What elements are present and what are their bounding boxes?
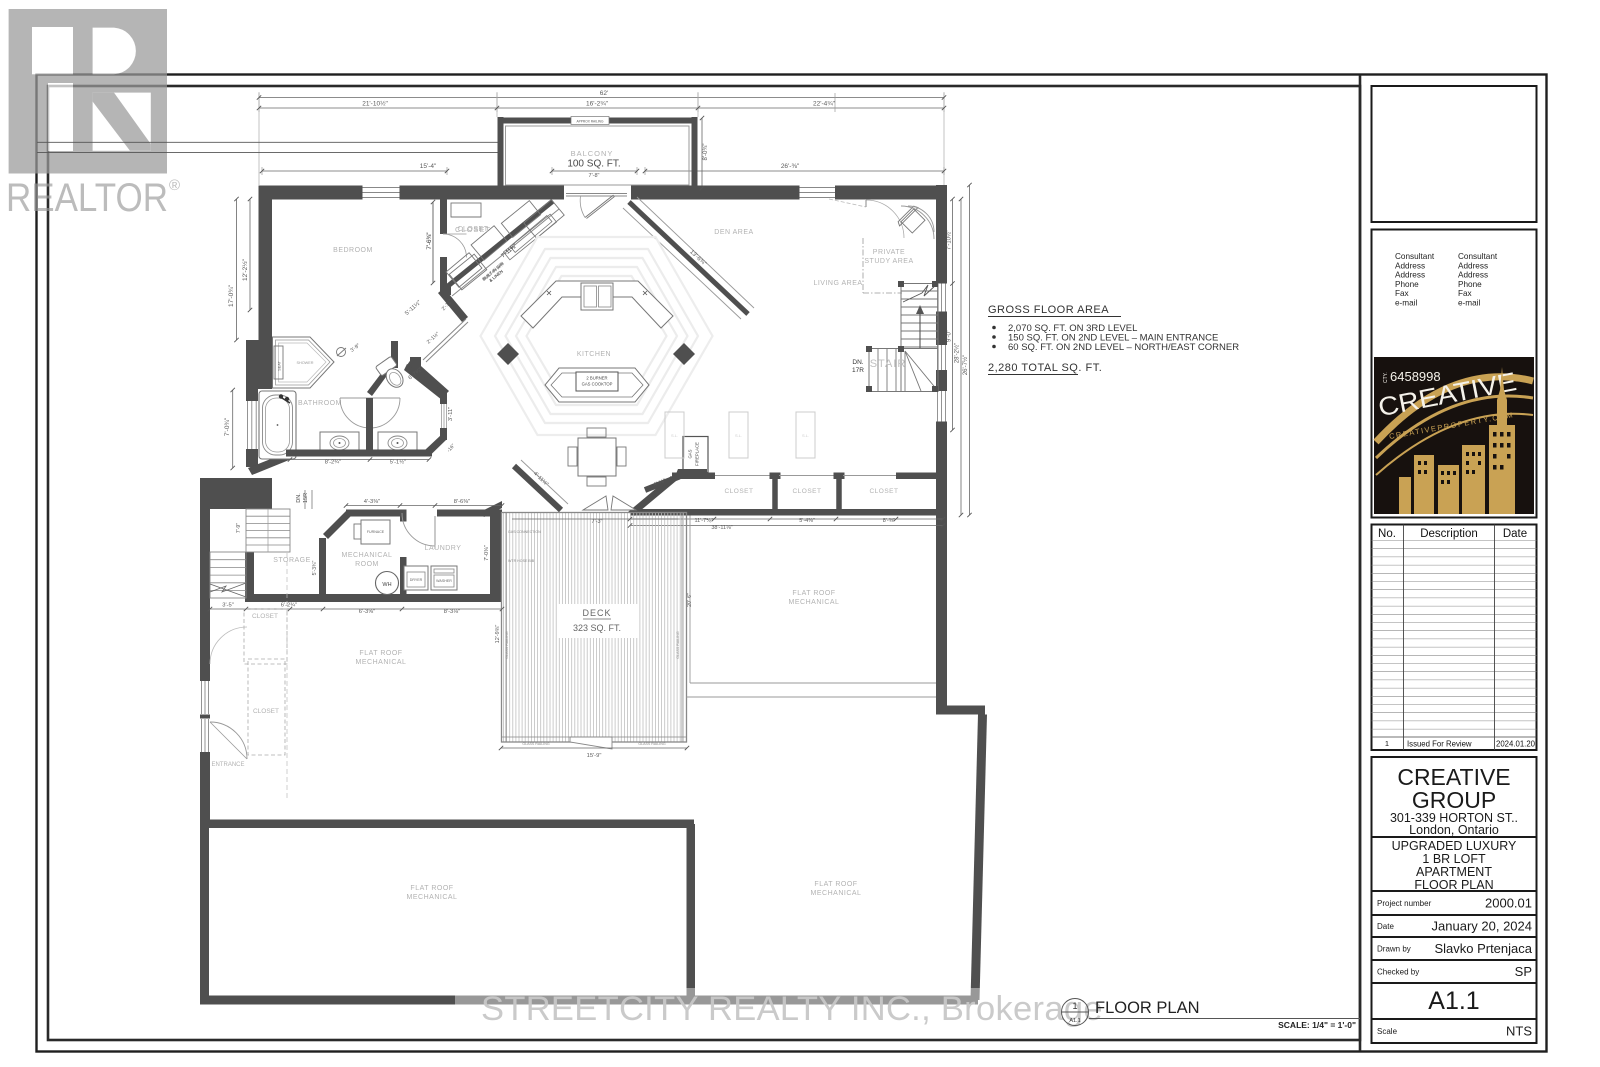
svg-text:5'-3¾": 5'-3¾" <box>312 561 318 576</box>
svg-text:SCALE: 1/4" = 1'-0": SCALE: 1/4" = 1'-0" <box>1278 1020 1356 1030</box>
svg-text:BALCONY: BALCONY <box>571 149 614 158</box>
svg-text:6458998: 6458998 <box>1390 369 1441 384</box>
svg-text:Drawn by: Drawn by <box>1377 945 1411 954</box>
svg-text:9'-0": 9'-0" <box>947 330 953 342</box>
svg-text:BATHROOM: BATHROOM <box>298 400 342 407</box>
svg-text:Checked by: Checked by <box>1377 968 1419 977</box>
svg-text:FLOOR PLAN: FLOOR PLAN <box>1095 999 1200 1017</box>
svg-text:STAIR: STAIR <box>870 358 907 370</box>
svg-text:6'-3⅝": 6'-3⅝" <box>359 609 375 615</box>
svg-text:21'-10½": 21'-10½" <box>362 100 388 108</box>
svg-text:Project number: Project number <box>1377 899 1432 908</box>
svg-text:GLASS RAILING: GLASS RAILING <box>676 631 680 659</box>
svg-text:28'-2½": 28'-2½" <box>954 343 961 363</box>
svg-text:12'-2½": 12'-2½" <box>241 258 249 281</box>
svg-text:Phone: Phone <box>1458 280 1482 289</box>
svg-text:e-mail: e-mail <box>1458 299 1480 308</box>
svg-text:DN.: DN. <box>852 359 863 366</box>
svg-text:FLOOR PLAN: FLOOR PLAN <box>1414 878 1493 892</box>
svg-text:FURNACE: FURNACE <box>367 530 385 534</box>
svg-text:4'-3⅜": 4'-3⅜" <box>364 499 380 505</box>
svg-text:FLAT ROOF: FLAT ROOF <box>359 650 402 657</box>
svg-text:A1.1: A1.1 <box>1428 987 1479 1015</box>
svg-text:17'-0¾": 17'-0¾" <box>228 284 235 307</box>
svg-text:MECHANICAL: MECHANICAL <box>789 599 840 606</box>
svg-text:2000.01: 2000.01 <box>1485 896 1532 911</box>
svg-text:12'-9⅜": 12'-9⅜" <box>495 625 501 644</box>
svg-text:Consultant: Consultant <box>1458 252 1498 261</box>
svg-text:STUDY AREA: STUDY AREA <box>864 258 913 265</box>
svg-text:Phone: Phone <box>1395 280 1419 289</box>
svg-text:MECHANICAL: MECHANICAL <box>407 894 458 901</box>
svg-text:S.L.: S.L. <box>735 433 742 438</box>
svg-text:8'-2¾": 8'-2¾" <box>325 460 341 466</box>
svg-text:5'-1½": 5'-1½" <box>390 459 406 466</box>
svg-text:January 20, 2024: January 20, 2024 <box>1432 919 1532 934</box>
svg-text:SP: SP <box>1515 964 1532 979</box>
svg-text:2024.01.20: 2024.01.20 <box>1496 740 1536 749</box>
svg-text:62': 62' <box>600 90 608 97</box>
svg-text:GROSS FLOOR AREA: GROSS FLOOR AREA <box>988 304 1109 316</box>
svg-text:GLASS RAILING: GLASS RAILING <box>522 742 550 746</box>
svg-text:Address: Address <box>1458 261 1488 270</box>
svg-text:GLASS RAILING: GLASS RAILING <box>505 631 509 659</box>
svg-text:22'-4¾": 22'-4¾" <box>813 101 836 108</box>
svg-text:WH: WH <box>382 582 391 588</box>
svg-text:Consultant: Consultant <box>1395 252 1435 261</box>
svg-text:GAS COOKTOP: GAS COOKTOP <box>582 382 613 387</box>
svg-text:FLAT ROOF: FLAT ROOF <box>814 881 857 888</box>
svg-text:FLAT ROOF: FLAT ROOF <box>792 590 835 597</box>
svg-text:GAS CONNECTION: GAS CONNECTION <box>508 530 541 534</box>
svg-text:5'-4⅜": 5'-4⅜" <box>799 518 815 524</box>
svg-text:REALTOR: REALTOR <box>6 176 168 220</box>
svg-text:GAS: GAS <box>688 449 693 458</box>
svg-text:7'-8": 7'-8" <box>589 173 600 179</box>
svg-text:LAUNDRY: LAUNDRY <box>425 545 462 552</box>
svg-text:DN.: DN. <box>296 493 302 503</box>
svg-text:LIVING AREA: LIVING AREA <box>813 280 862 287</box>
svg-text:3'-11": 3'-11" <box>448 407 454 421</box>
svg-text:11'-7⅙": 11'-7⅙" <box>695 518 714 524</box>
svg-text:S.L.: S.L. <box>802 433 809 438</box>
svg-text:8'-0¾": 8'-0¾" <box>703 144 709 161</box>
svg-text:ENTRANCE: ENTRANCE <box>211 762 244 768</box>
svg-text:Address: Address <box>1458 271 1488 280</box>
svg-text:26'-7½": 26'-7½" <box>962 355 969 375</box>
svg-text:7'-6¾": 7'-6¾" <box>427 233 433 250</box>
svg-text:e-mail: e-mail <box>1395 299 1417 308</box>
svg-text:Fax: Fax <box>1458 289 1472 298</box>
svg-text:STORAGE: STORAGE <box>273 557 311 564</box>
svg-text:7'-0¾": 7'-0¾" <box>224 417 231 436</box>
svg-text:8'-6⅜": 8'-6⅜" <box>454 499 470 505</box>
svg-text:CLOSET: CLOSET <box>253 708 279 715</box>
svg-text:15R: 15R <box>303 493 309 503</box>
svg-text:Address: Address <box>1395 271 1425 280</box>
svg-text:FIREPLACE: FIREPLACE <box>695 442 700 466</box>
svg-text:15'-9": 15'-9" <box>587 753 602 759</box>
svg-text:Issued For Review: Issued For Review <box>1407 740 1472 749</box>
svg-text:WASHER: WASHER <box>436 579 452 583</box>
svg-text:APARTMENT: APARTMENT <box>1416 865 1492 879</box>
svg-text:8'-3⅛": 8'-3⅛" <box>444 609 460 615</box>
svg-text:2 BURNER: 2 BURNER <box>586 376 607 381</box>
svg-text:®: ® <box>169 177 180 194</box>
svg-text:6'-2¾": 6'-2¾" <box>281 603 297 609</box>
svg-text:NTS: NTS <box>1506 1024 1532 1039</box>
svg-text:CLOSET: CLOSET <box>252 613 278 620</box>
svg-text:100 SQ. FT.: 100 SQ. FT. <box>567 159 620 170</box>
svg-text:BEDROOM: BEDROOM <box>333 247 373 254</box>
svg-text:1 BR LOFT: 1 BR LOFT <box>1422 852 1486 866</box>
svg-text:2,280 TOTAL SQ. FT.: 2,280 TOTAL SQ. FT. <box>988 362 1102 374</box>
svg-text:APPROX RAILING: APPROX RAILING <box>577 120 604 124</box>
svg-text:7'-9": 7'-9" <box>236 523 242 533</box>
svg-text:7'-0⅜": 7'-0⅜" <box>484 545 490 561</box>
svg-text:STREETCITY REALTY INC., Broker: STREETCITY REALTY INC., Brokerage <box>481 990 1104 1028</box>
svg-text:DECK: DECK <box>582 608 611 618</box>
svg-text:8'-⅜": 8'-⅜" <box>883 518 896 524</box>
svg-text:Description: Description <box>1420 528 1478 540</box>
svg-text:SEAT: SEAT <box>278 361 282 371</box>
svg-text:MECHANICAL: MECHANICAL <box>342 552 393 559</box>
svg-text:CLOSET: CLOSET <box>869 488 898 495</box>
svg-text:7'-3": 7'-3" <box>592 519 603 525</box>
svg-text:DRYER: DRYER <box>410 578 423 582</box>
svg-text:17R: 17R <box>852 367 864 374</box>
svg-text:26'-⅜": 26'-⅜" <box>781 163 800 170</box>
svg-text:Fax: Fax <box>1395 289 1409 298</box>
svg-text:A1.1: A1.1 <box>1069 1018 1080 1024</box>
svg-text:Scale: Scale <box>1377 1027 1398 1036</box>
svg-text:1: 1 <box>1072 1001 1077 1011</box>
svg-text:MECHANICAL: MECHANICAL <box>811 890 862 897</box>
svg-text:16'-2¾": 16'-2¾" <box>586 101 609 108</box>
svg-text:London, Ontario: London, Ontario <box>1409 823 1499 837</box>
svg-text:CLOSET: CLOSET <box>724 488 753 495</box>
svg-text:Address: Address <box>1395 261 1425 270</box>
svg-text:CLOSET: CLOSET <box>792 488 821 495</box>
svg-text:GROUP: GROUP <box>1412 787 1496 813</box>
svg-text:GLASS RAILING: GLASS RAILING <box>638 742 666 746</box>
svg-text:CLOSET: CLOSET <box>455 225 491 234</box>
svg-text:S.L.: S.L. <box>671 433 678 438</box>
svg-text:PRIVATE: PRIVATE <box>873 249 905 256</box>
svg-text:15'-4": 15'-4" <box>420 163 437 170</box>
svg-text:FLAT ROOF: FLAT ROOF <box>410 885 453 892</box>
svg-text:CTY.: CTY. <box>1383 372 1389 383</box>
svg-text:UPGRADED LUXURY: UPGRADED LUXURY <box>1392 839 1517 853</box>
svg-text:Slavko Prtenjaca: Slavko Prtenjaca <box>1434 941 1532 956</box>
svg-text:No.: No. <box>1378 528 1396 540</box>
svg-text:WTR HOSE BIB: WTR HOSE BIB <box>508 559 535 563</box>
svg-text:ROOM: ROOM <box>355 561 379 568</box>
svg-text:Date: Date <box>1377 922 1394 931</box>
svg-text:38'-11⅛": 38'-11⅛" <box>711 525 732 531</box>
svg-text:KITCHEN: KITCHEN <box>577 351 611 358</box>
svg-text:SHOWER: SHOWER <box>296 361 313 365</box>
svg-text:323 SQ. FT.: 323 SQ. FT. <box>573 623 621 633</box>
svg-text:MECHANICAL: MECHANICAL <box>356 659 407 666</box>
svg-text:1: 1 <box>1385 739 1389 748</box>
svg-text:60 SQ. FT. ON 2ND LEVEL: 60 SQ. FT. ON 2ND LEVEL – NORTH/EAST COR… <box>1008 342 1239 353</box>
svg-text:DEN AREA: DEN AREA <box>714 229 753 236</box>
svg-text:Date: Date <box>1503 528 1527 540</box>
svg-text:3'-5": 3'-5" <box>222 603 234 609</box>
